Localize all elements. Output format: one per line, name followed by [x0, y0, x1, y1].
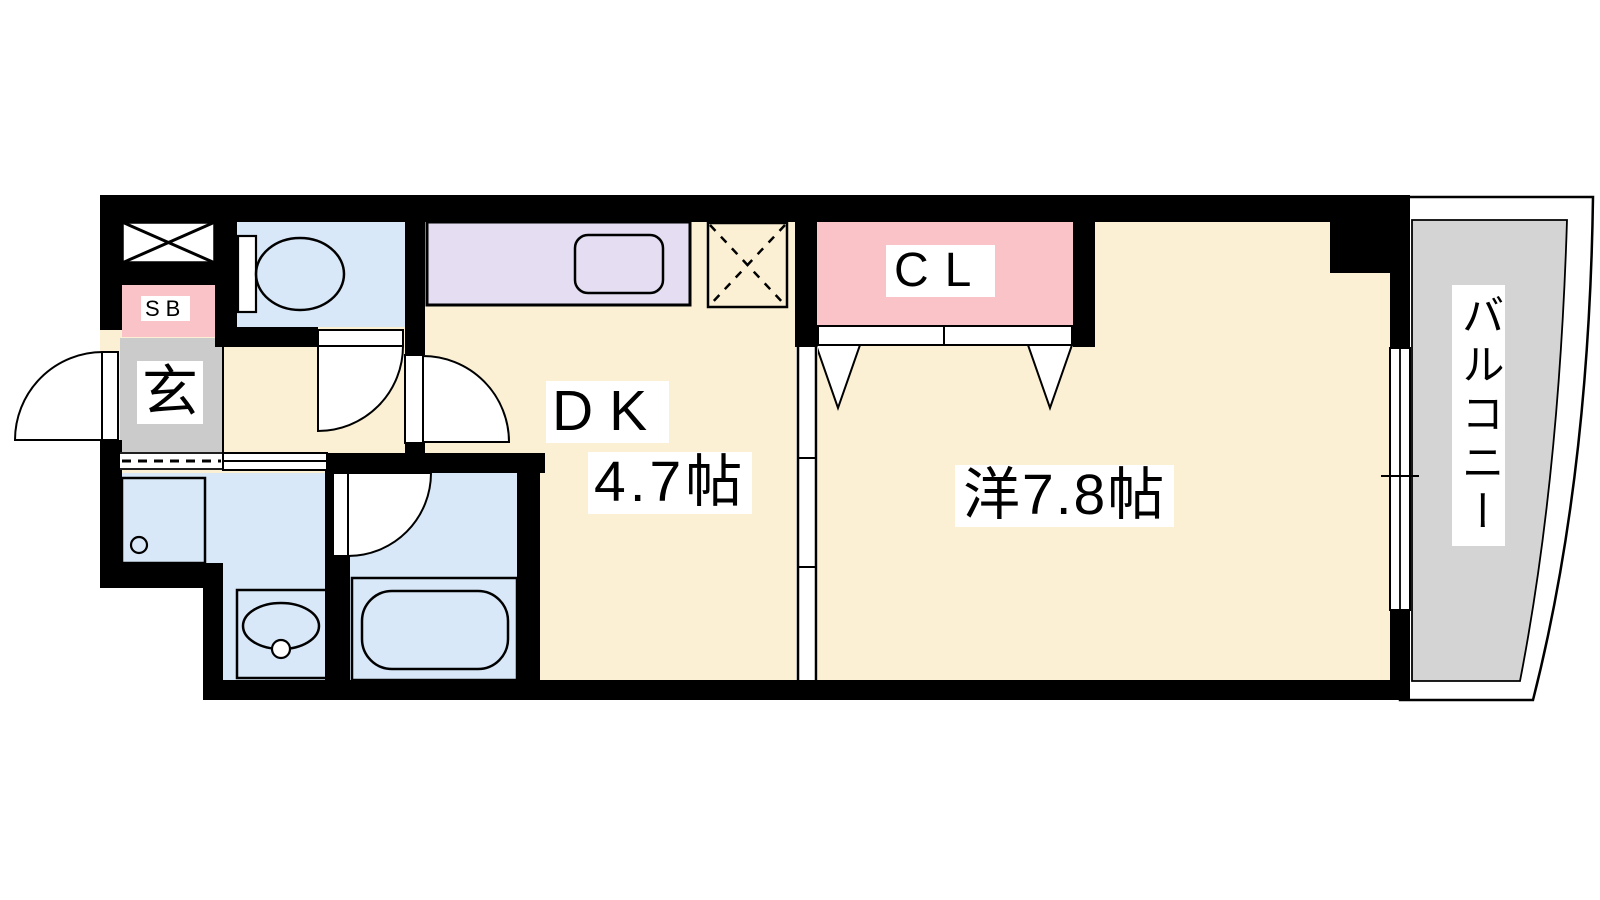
wall-segment — [1073, 222, 1095, 347]
wall-segment — [325, 473, 333, 557]
wall-segment — [100, 195, 1410, 222]
wall-segment — [795, 222, 817, 347]
western-room-label: 洋7.8帖 — [955, 465, 1174, 527]
room-partition-sliding-door — [796, 347, 818, 680]
floor-plan-drawing — [0, 0, 1600, 900]
meter-box — [122, 222, 215, 263]
wall-segment — [215, 327, 318, 347]
entrance-door-swing — [15, 352, 118, 440]
toilet-tank — [238, 236, 256, 312]
closet-label: CL — [886, 245, 995, 297]
shoe-box-label: SB — [141, 296, 190, 321]
wall-segment — [1390, 273, 1410, 350]
wall-segment — [1390, 608, 1410, 700]
dk-size-label: 4.7帖 — [588, 452, 752, 514]
toilet-room — [237, 222, 405, 327]
wall-segment — [325, 555, 350, 680]
balcony-label: バルコニー — [1452, 285, 1505, 546]
floor-plan: SB 玄 DK 4.7帖 洋7.8帖 CL バルコニー — [0, 0, 1600, 900]
wall-segment — [215, 222, 237, 338]
wall-segment — [203, 680, 1410, 700]
wall-segment — [405, 222, 425, 355]
dk-label: DK — [546, 381, 669, 443]
entrance-step-line — [120, 452, 223, 470]
wall-segment — [100, 563, 223, 588]
faucet-icon — [272, 640, 290, 658]
wall-segment — [325, 453, 545, 473]
wall-segment — [1330, 195, 1410, 273]
wall-segment — [122, 263, 215, 285]
entrance-label: 玄 — [137, 361, 203, 424]
wall-segment — [100, 195, 122, 330]
wall-segment — [517, 473, 540, 680]
washroom-sliding-door — [223, 453, 327, 470]
